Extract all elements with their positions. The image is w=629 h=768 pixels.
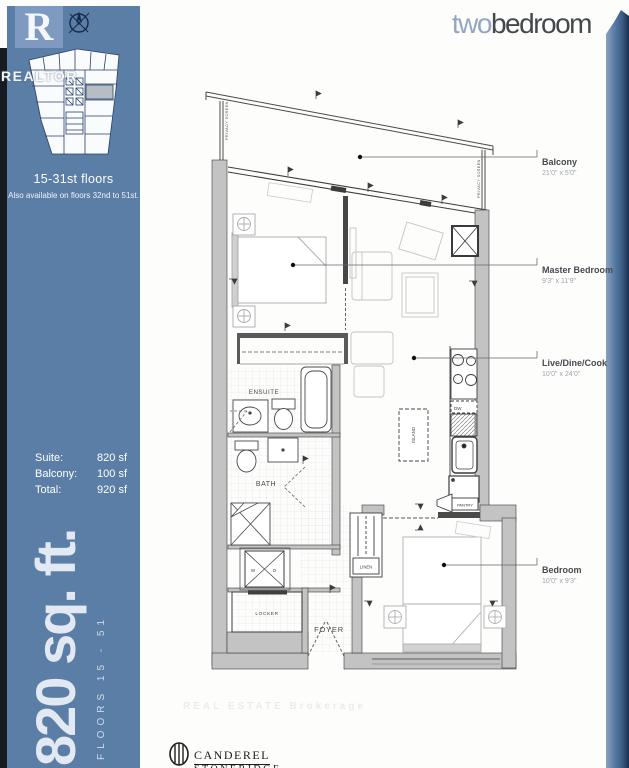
locker-label: LOCKER [255,611,278,617]
label-bedroom: Bedroom [542,565,582,575]
privacy-screen-label-right: PRIVACY SCREEN [477,159,481,198]
brokerage-watermark: REAL ESTATE Brokerage [183,701,433,712]
dims-live-dine-cook: 10'0" x 24'0" [542,371,581,378]
brand-name-bottom: STONERIDGE [194,764,282,768]
developer-logo: CANDEREL STONERIDGE [167,740,367,768]
dims-balcony: 21'0" x 5'0" [542,170,577,177]
canderel-logo-icon [167,741,191,768]
island-label: ISLAND [411,426,416,443]
room-label-foyer: FOYER [314,625,344,634]
label-balcony: Balcony [542,157,577,167]
dryer-label: D [273,568,276,573]
privacy-screen-label-left: PRIVACY SCREEN [225,101,229,140]
pantry-label: PANTRY [457,503,473,508]
dw-label: DW [454,406,462,411]
room-label-bath: BATH [256,481,276,488]
dims-master-bedroom: 9'3" x 11'9" [542,278,576,285]
brand-name-top: CANDEREL [194,748,270,765]
dims-bedroom: 10'0" x 9'3" [542,578,577,585]
room-label-ensuite: ENSUITE [249,389,279,396]
linen-label: LINEN [360,565,372,570]
label-live-dine-cook: Live/Dine/Cook [542,358,608,368]
label-master-bedroom: Master Bedroom [542,265,613,275]
washer-label: W [251,568,255,573]
floorplan: PRIVACY SCREEN PRIVACY SCREEN [0,0,629,768]
